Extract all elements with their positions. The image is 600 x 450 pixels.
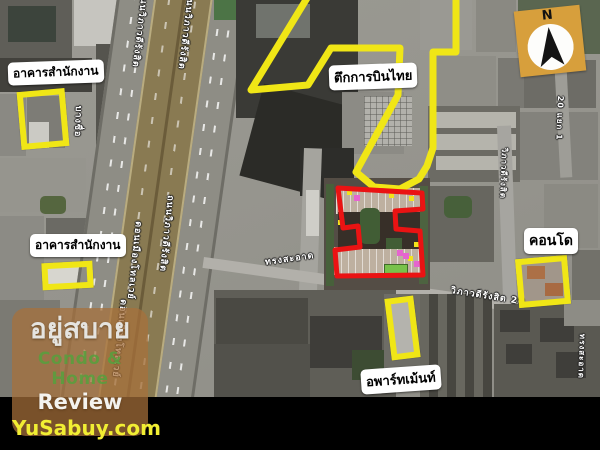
- map-building: [476, 0, 516, 52]
- road-label-soi-vibhavadi: วิภาวดีรังสิต: [496, 148, 511, 200]
- map-building: [506, 344, 532, 364]
- lot-marker-yellow: [414, 242, 419, 247]
- map-building: [8, 6, 56, 42]
- lot-marker-yellow: [347, 190, 352, 195]
- watermark-panel: อยู่สบาย Condo & Home Review YuSabuy.com: [12, 308, 148, 436]
- road-label-song-sa-ard-side: ทรงสะอาด: [574, 334, 589, 380]
- parking-strip: [334, 247, 422, 275]
- lot-marker-pink: [354, 195, 360, 201]
- lot-marker-pink: [403, 253, 409, 259]
- compass: N: [514, 5, 587, 78]
- map-trees: [326, 184, 334, 286]
- tower-roof: [364, 96, 412, 146]
- watermark-brand: อยู่สบาย: [12, 310, 148, 348]
- lot-marker-yellow: [389, 193, 394, 198]
- watermark-site: YuSabuy.com: [12, 416, 148, 440]
- map-trees: [444, 196, 472, 218]
- map-building: [564, 300, 600, 326]
- map-building: [500, 310, 530, 332]
- lot-marker-yellow: [338, 220, 343, 225]
- map-building: [432, 56, 496, 106]
- north-arrow-icon: [525, 22, 576, 73]
- highlight-box-office-top: [17, 88, 70, 150]
- map-building: [0, 216, 44, 300]
- road-label-bang-sue: บางซื่อ: [71, 106, 86, 138]
- map-building: [306, 190, 319, 236]
- highlight-box-condo: [515, 255, 571, 308]
- map-trees: [386, 238, 402, 249]
- map-building: [256, 4, 310, 38]
- label-office-building-top: อาคารสำนักงาน: [8, 59, 104, 85]
- map-building: [214, 344, 310, 397]
- lot-marker-pink: [414, 261, 420, 267]
- map-trees: [360, 208, 380, 244]
- map-screenshot: ถนนวิภาวดีรังสิต ถนนวิภาวดีรังสิต บางซื่…: [0, 0, 600, 450]
- watermark-review: Review: [12, 390, 148, 414]
- label-condo: คอนโด: [524, 228, 578, 254]
- label-thai-airways-building: ตึกการบินไทย: [329, 62, 418, 90]
- compass-dial: [525, 22, 576, 73]
- label-office-building-mid: อาคารสำนักงาน: [30, 234, 126, 257]
- map-trees: [40, 196, 66, 214]
- highlight-box-office-mid: [41, 261, 93, 291]
- lot-marker-green: [384, 264, 408, 274]
- lot-marker-yellow: [409, 196, 414, 201]
- watermark-tagline: Condo & Home: [12, 349, 148, 389]
- road-label-soi-20-yaek1: 20 แยก 1: [552, 96, 567, 141]
- map-building: [420, 0, 472, 50]
